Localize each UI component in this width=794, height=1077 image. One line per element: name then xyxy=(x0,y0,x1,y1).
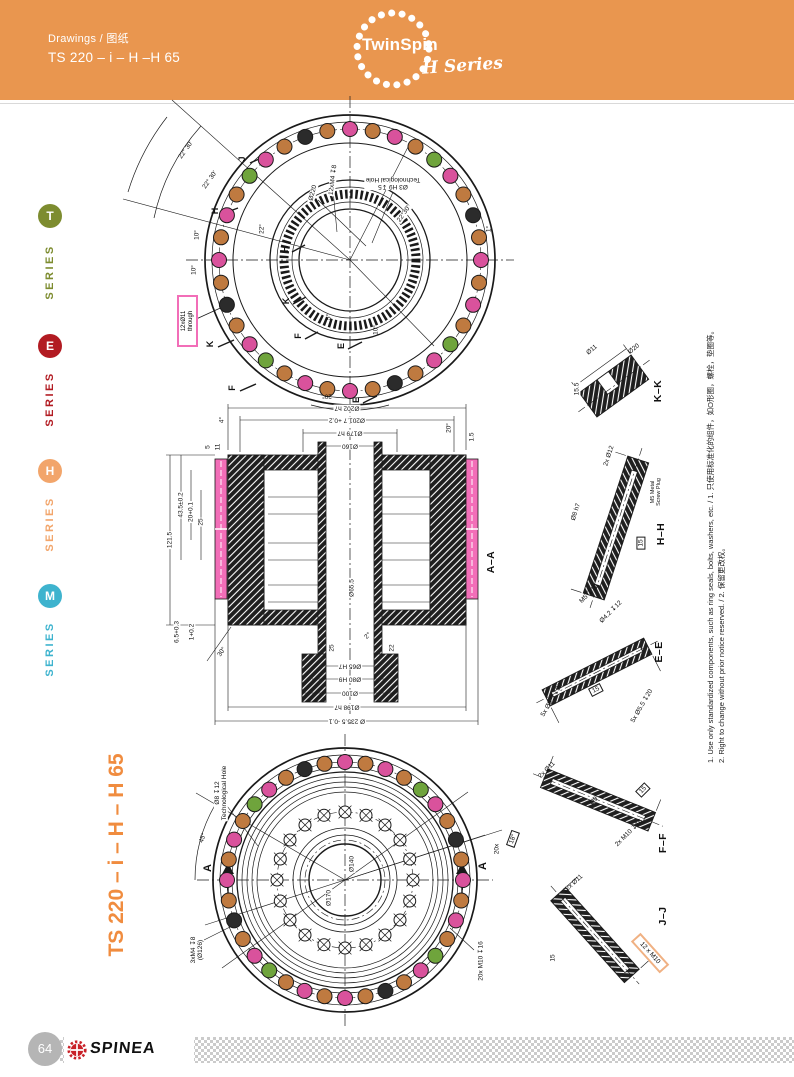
dim-label-5: 5 xyxy=(204,444,211,450)
detail-view-jj xyxy=(543,869,658,991)
bolt xyxy=(365,382,380,397)
bolt xyxy=(221,893,236,908)
section-marker-a-right: A xyxy=(477,861,489,871)
dim-label-taper: 4° xyxy=(218,416,225,424)
dim-label-d160: Ø160 xyxy=(341,442,359,449)
bolt xyxy=(466,297,481,312)
bolt xyxy=(317,756,332,771)
note-2: 2. Right to change without prior notice … xyxy=(716,327,727,763)
bolt xyxy=(235,814,250,829)
bolt xyxy=(297,983,312,998)
bolt xyxy=(343,122,358,137)
bolt xyxy=(358,989,373,1004)
dim-label-d198: Ø198 h7 xyxy=(334,703,361,710)
dim-label-1215: 121.5 xyxy=(166,531,173,549)
bolt xyxy=(408,366,423,381)
dim-label-tech-hole-bottom: Ø8 ↧12Technological Hole xyxy=(214,765,228,822)
bolt xyxy=(466,208,481,223)
bolt xyxy=(378,983,393,998)
section-marker-f2: F xyxy=(294,332,304,340)
bolt xyxy=(235,932,250,947)
detail-title-ff: F–F xyxy=(658,832,670,854)
bolt xyxy=(227,832,242,847)
bolt xyxy=(440,932,455,947)
count-label-20x: 20x xyxy=(493,843,500,855)
bolt xyxy=(298,376,313,391)
bolt xyxy=(279,975,294,990)
dim-label-d179: Ø179 h7 xyxy=(337,429,364,436)
bolt xyxy=(262,782,277,797)
detail-view-ee xyxy=(532,633,670,728)
angle-label-10a: 10° xyxy=(193,229,200,241)
bolt xyxy=(427,152,442,167)
bolt xyxy=(262,963,277,978)
bolt xyxy=(365,124,380,139)
highlight-box-12xo11: 12xØ11through xyxy=(177,295,198,347)
bolt xyxy=(214,230,229,245)
angle-label-corner20: 20° xyxy=(445,422,452,434)
bolt xyxy=(472,275,487,290)
bolt xyxy=(448,913,463,928)
bolt xyxy=(456,187,471,202)
bolt xyxy=(279,770,294,785)
bolt xyxy=(428,948,443,963)
bolt xyxy=(317,989,332,1004)
bolt xyxy=(413,782,428,797)
angle-label-10b: 10° xyxy=(190,264,197,276)
bolt xyxy=(214,275,229,290)
section-title-aa: A–A xyxy=(486,550,498,575)
section-marker-h2: H xyxy=(281,245,291,254)
section-marker-k1: K xyxy=(206,340,216,349)
bolt xyxy=(258,353,273,368)
bolt xyxy=(378,762,393,777)
dim-label-tech-hole-top: Ø3 H9 ↧5Technological Hole xyxy=(365,176,422,190)
bolt xyxy=(229,318,244,333)
catalog-page: Drawings / 图纸 TS 220 – i – H –H 65 TwinS… xyxy=(0,0,794,1077)
dim-label-d2355: Ø 235.5 -0.1 xyxy=(328,717,366,724)
bolt xyxy=(338,991,353,1006)
dim-label-3xm4: 3xM4 ↧8(Ø126) xyxy=(190,936,204,965)
dim-label-d170: Ø170 xyxy=(325,889,332,907)
bolt xyxy=(247,948,262,963)
angle-label-1: 1° xyxy=(485,225,492,233)
kk-label-155: 15.5 xyxy=(573,382,580,397)
bolt xyxy=(297,762,312,777)
section-view-aa xyxy=(166,404,478,725)
dim-label-d655: Ø65.5 xyxy=(348,578,355,598)
dim-label-11: 11 xyxy=(214,443,221,452)
bolt xyxy=(448,832,463,847)
angle-label-22: 22° xyxy=(258,223,265,235)
dim-label-d140: Ø140 xyxy=(348,855,355,873)
section-marker-j: J xyxy=(238,155,248,162)
bolt xyxy=(443,168,458,183)
angle-label-20: 20° xyxy=(321,392,333,399)
bolt xyxy=(219,208,234,223)
dim-label-d65h7: Ø65 H7 xyxy=(338,662,362,669)
section-marker-f1: F xyxy=(228,384,238,392)
dim-label-d80: Ø80 H9 xyxy=(338,675,362,682)
bolt xyxy=(338,755,353,770)
dim-label-b25: 25 xyxy=(328,643,335,652)
bolt xyxy=(358,756,373,771)
bolt xyxy=(242,168,257,183)
detail-title-ee: E–E xyxy=(654,640,666,663)
dim-label-25: 25 xyxy=(197,517,204,526)
bolt xyxy=(472,230,487,245)
bolt xyxy=(428,797,443,812)
hh-label-3: 15 xyxy=(636,536,645,549)
dim-label-65: 6.5+0.3 xyxy=(173,620,180,644)
bolt xyxy=(387,376,402,391)
dim-label-15mm: 1.5 xyxy=(468,431,475,442)
bolt xyxy=(227,913,242,928)
section-marker-a-left: A xyxy=(202,863,214,873)
bolt xyxy=(454,893,469,908)
bolt xyxy=(454,852,469,867)
bolt xyxy=(221,852,236,867)
bolt xyxy=(242,337,257,352)
dim-label-d100: Ø100 xyxy=(341,689,359,696)
section-marker-e1: E xyxy=(337,342,347,350)
jj-label-2: 15 xyxy=(549,953,556,962)
side-model-title: TS 220 – i – H – H 65 xyxy=(105,753,129,956)
section-marker-e2: E xyxy=(352,396,362,404)
bolt xyxy=(456,873,471,888)
dim-label-20xm10: 20x M10 ↧16 xyxy=(477,940,484,981)
bolt xyxy=(397,770,412,785)
dim-label-20: 20+0.1 xyxy=(187,501,194,523)
bolt xyxy=(413,963,428,978)
bolt xyxy=(443,337,458,352)
bolt xyxy=(212,253,227,268)
detail-title-kk: K–K xyxy=(653,379,665,404)
top-flange-view xyxy=(123,96,514,424)
angle-label-5: 5° xyxy=(325,313,332,321)
dim-label-1: 1+0.2 xyxy=(188,623,195,641)
dim-label-b22: 22 xyxy=(388,643,395,652)
bolt xyxy=(474,253,489,268)
section-marker-h1: H xyxy=(211,207,221,216)
detail-views xyxy=(529,337,672,990)
bolt xyxy=(427,353,442,368)
bolt xyxy=(387,129,402,144)
bolt xyxy=(229,187,244,202)
bolt xyxy=(247,797,262,812)
bolt xyxy=(397,975,412,990)
dim-label-d202: Ø202 h7 xyxy=(334,404,361,411)
detail-title-jj: J–J xyxy=(658,905,670,926)
detail-view-hh xyxy=(567,441,652,612)
bolt xyxy=(258,152,273,167)
dim-label-435: 43.5±0.2 xyxy=(177,491,184,518)
bolt xyxy=(298,129,313,144)
section-marker-k2: K xyxy=(282,297,292,306)
detail-title-hh: H–H xyxy=(656,522,668,547)
hh-label-plug: M5 MetalScrew Plug xyxy=(650,477,662,507)
bolt xyxy=(440,814,455,829)
dim-label-d2017: Ø201.7 +0.2 xyxy=(328,416,366,423)
bolt xyxy=(277,139,292,154)
note-1: 1. Use only standardized components, suc… xyxy=(705,327,716,763)
bolt xyxy=(277,366,292,381)
angle-label-10c: 10° xyxy=(372,324,379,336)
bolt xyxy=(456,318,471,333)
bolt xyxy=(220,873,235,888)
bolt xyxy=(320,124,335,139)
bolt xyxy=(219,297,234,312)
bolt xyxy=(408,139,423,154)
notes: 1. Use only standardized components, suc… xyxy=(705,327,728,763)
